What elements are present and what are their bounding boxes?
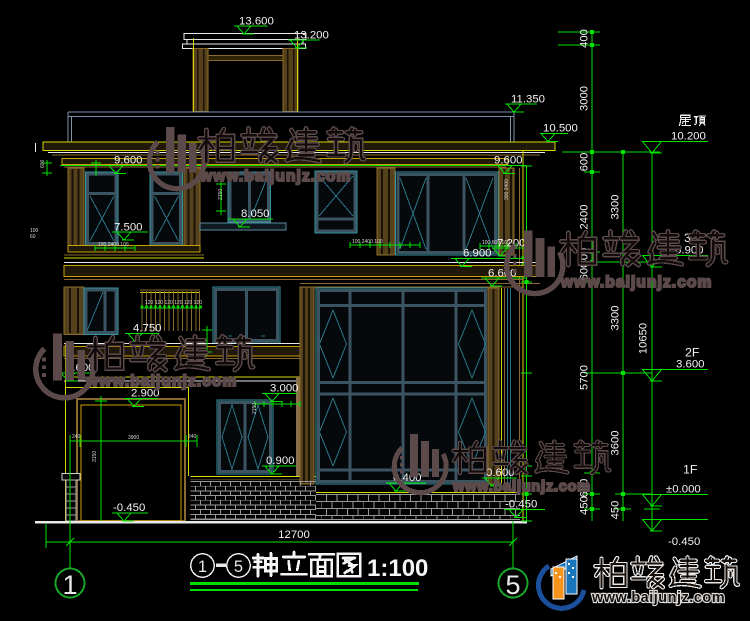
- svg-text:3300: 3300: [610, 195, 622, 220]
- svg-text:10650: 10650: [638, 323, 650, 354]
- svg-text:300 2400: 300 2400: [504, 179, 510, 200]
- svg-text:1:100: 1:100: [367, 555, 428, 582]
- svg-text:1: 1: [198, 558, 207, 576]
- svg-text:3600: 3600: [610, 431, 622, 456]
- svg-text:2150: 2150: [218, 189, 224, 200]
- svg-text:600: 600: [579, 153, 591, 172]
- svg-text:100 600 100: 100 600 100: [482, 240, 510, 246]
- svg-text:12700: 12700: [278, 529, 310, 541]
- svg-text:2400: 2400: [579, 205, 591, 230]
- svg-text:8.050: 8.050: [241, 208, 270, 220]
- svg-text:3000: 3000: [579, 86, 591, 111]
- svg-text:-0.450: -0.450: [113, 502, 145, 514]
- svg-text:3150: 3150: [92, 451, 98, 462]
- svg-text:www.baijunjz.com: www.baijunjz.com: [591, 590, 725, 606]
- svg-text:5: 5: [234, 558, 243, 576]
- svg-text:4.750: 4.750: [133, 323, 162, 335]
- svg-text:7.500: 7.500: [114, 222, 143, 234]
- svg-text:60: 60: [30, 234, 36, 240]
- svg-text:120 120 120 120 120 120: 120 120 120 120 120 120: [145, 300, 202, 306]
- svg-text:-0.450: -0.450: [668, 536, 700, 548]
- svg-text:3900: 3900: [128, 435, 139, 441]
- svg-text:5: 5: [505, 570, 520, 600]
- svg-text:400: 400: [579, 29, 591, 48]
- svg-text:13.200: 13.200: [294, 30, 329, 42]
- svg-text:2150: 2150: [252, 403, 258, 414]
- svg-text:13.600: 13.600: [239, 16, 274, 28]
- svg-text:5700: 5700: [579, 365, 591, 390]
- svg-text:450: 450: [610, 501, 622, 520]
- svg-text:3.000: 3.000: [270, 383, 299, 395]
- svg-text:10.200: 10.200: [671, 131, 706, 143]
- svg-text:www.baijunjz.com: www.baijunjz.com: [560, 274, 712, 291]
- svg-text:3.600: 3.600: [676, 359, 705, 371]
- svg-text:www.baijunjz.com: www.baijunjz.com: [85, 373, 237, 390]
- svg-text:240: 240: [72, 434, 81, 440]
- svg-text:450: 450: [579, 496, 591, 515]
- svg-text:100 2400 100: 100 2400 100: [352, 239, 383, 245]
- svg-text:100 2400 100: 100 2400 100: [98, 242, 129, 248]
- svg-text:11.350: 11.350: [511, 94, 545, 106]
- svg-text:9.600: 9.600: [114, 155, 143, 167]
- svg-text:2F: 2F: [685, 346, 700, 360]
- svg-text:www.baijunjz.com: www.baijunjz.com: [199, 168, 351, 185]
- svg-text:9.600: 9.600: [494, 155, 523, 167]
- svg-text:www.baijunjz.com: www.baijunjz.com: [452, 479, 591, 495]
- svg-text:0.900: 0.900: [266, 455, 295, 467]
- svg-text:1: 1: [62, 570, 77, 600]
- svg-text:600: 600: [40, 159, 46, 168]
- svg-text:1F: 1F: [683, 463, 698, 477]
- svg-text:10.500: 10.500: [543, 123, 578, 135]
- svg-text:240: 240: [188, 434, 197, 440]
- svg-text:-0.450: -0.450: [505, 499, 537, 511]
- svg-text:6.900: 6.900: [463, 248, 492, 260]
- svg-text:3300: 3300: [610, 306, 622, 331]
- svg-text:±0.000: ±0.000: [666, 484, 701, 496]
